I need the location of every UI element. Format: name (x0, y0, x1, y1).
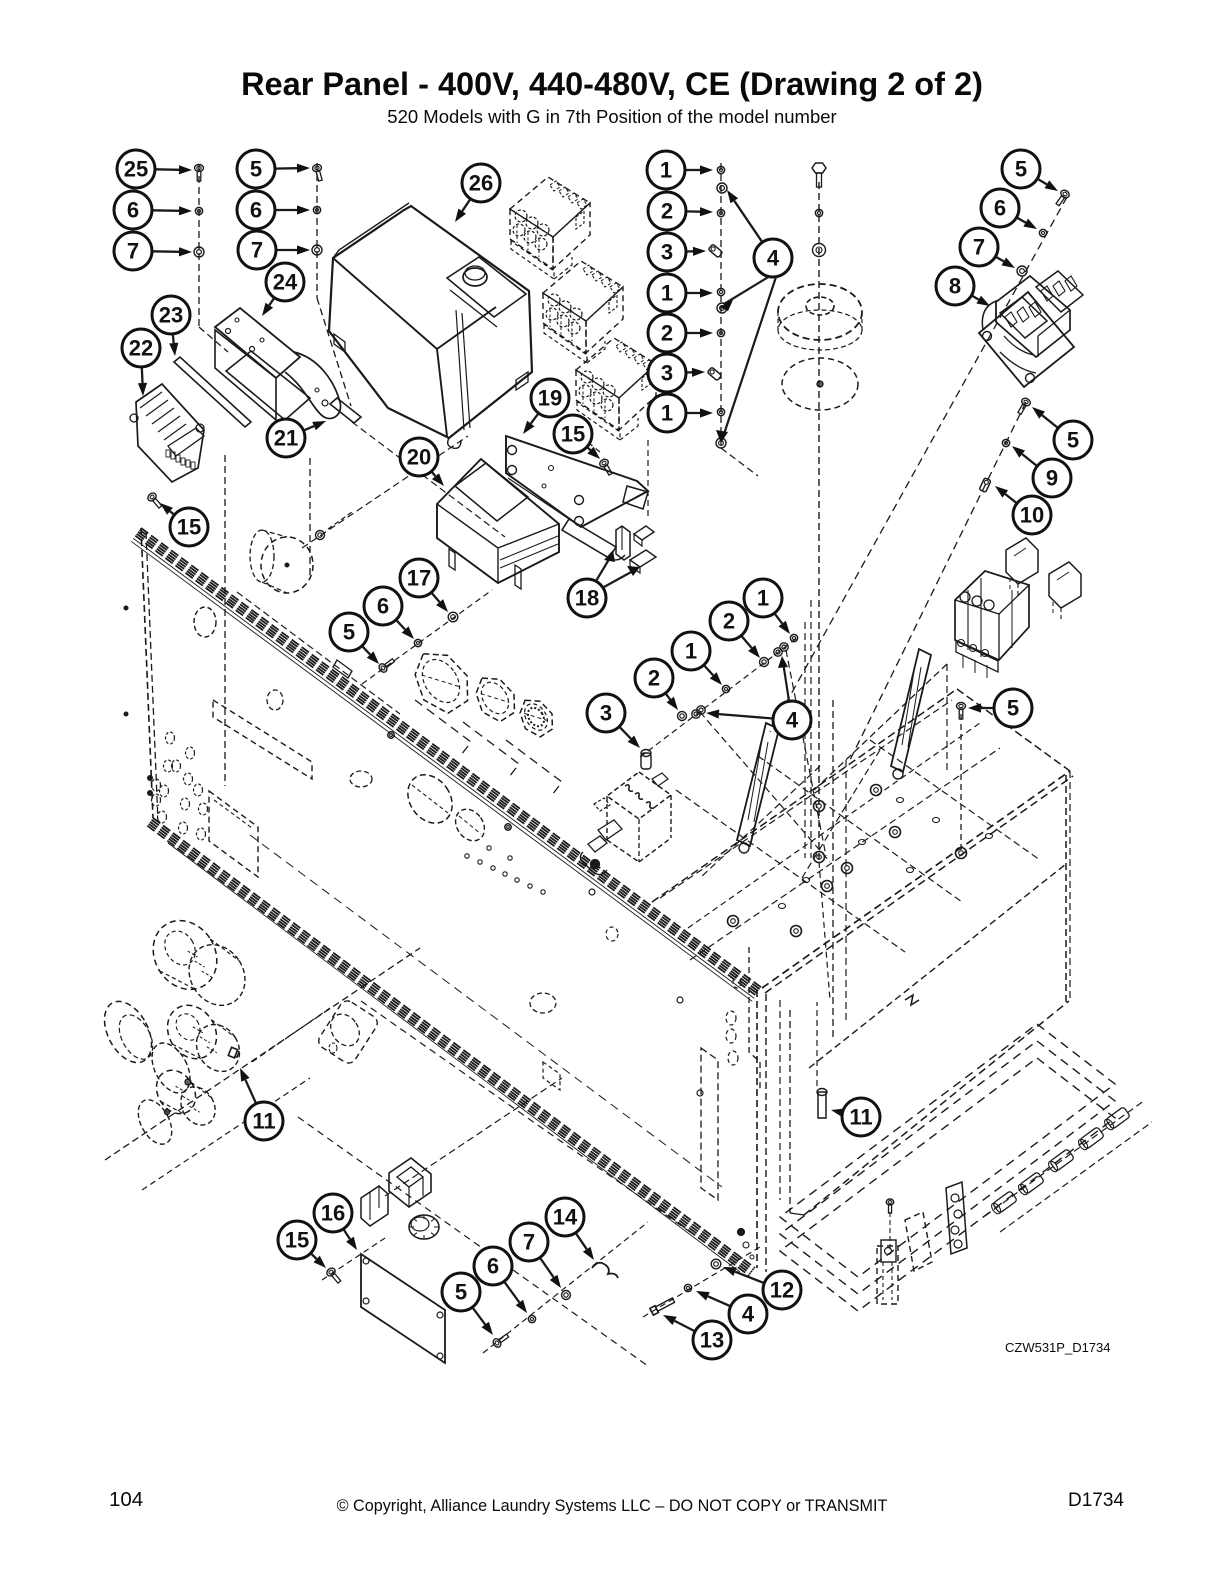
svg-text:1: 1 (757, 586, 769, 611)
svg-text:1: 1 (685, 639, 697, 664)
svg-text:2: 2 (661, 321, 673, 346)
svg-text:4: 4 (786, 708, 799, 733)
svg-text:3: 3 (661, 361, 673, 386)
svg-text:6: 6 (377, 594, 389, 619)
svg-text:11: 11 (849, 1105, 872, 1130)
svg-text:26: 26 (469, 171, 493, 196)
svg-text:4: 4 (767, 246, 780, 271)
svg-text:5: 5 (455, 1280, 467, 1305)
svg-text:16: 16 (321, 1201, 345, 1226)
svg-text:17: 17 (407, 566, 431, 591)
svg-text:104: 104 (109, 1488, 143, 1511)
svg-text:15: 15 (561, 422, 585, 447)
svg-text:6: 6 (250, 198, 262, 223)
svg-text:14: 14 (553, 1205, 578, 1230)
svg-text:25: 25 (124, 157, 148, 182)
svg-text:7: 7 (523, 1230, 535, 1255)
svg-text:5: 5 (1015, 157, 1027, 182)
svg-text:7: 7 (973, 235, 985, 260)
svg-text:7: 7 (251, 238, 263, 263)
svg-text:5: 5 (1067, 428, 1079, 453)
svg-text:9: 9 (1046, 466, 1058, 491)
svg-text:22: 22 (129, 336, 153, 361)
svg-text:5: 5 (343, 620, 355, 645)
svg-text:520 Models with G in 7th Posit: 520 Models with G in 7th Position of the… (387, 106, 836, 127)
svg-text:2: 2 (723, 609, 735, 634)
svg-text:12: 12 (770, 1278, 794, 1303)
svg-text:7: 7 (127, 239, 139, 264)
svg-text:1: 1 (660, 158, 672, 183)
svg-text:4: 4 (742, 1302, 755, 1327)
svg-text:© Copyright, Alliance Laundry: © Copyright, Alliance Laundry Systems LL… (337, 1497, 888, 1515)
svg-text:24: 24 (273, 270, 298, 295)
svg-text:15: 15 (177, 515, 201, 540)
svg-text:15: 15 (285, 1228, 309, 1253)
svg-text:1: 1 (661, 281, 673, 306)
svg-text:21: 21 (274, 426, 298, 451)
svg-text:6: 6 (487, 1254, 499, 1279)
svg-text:5: 5 (1007, 696, 1019, 721)
svg-text:D1734: D1734 (1068, 1490, 1124, 1511)
svg-text:2: 2 (661, 199, 673, 224)
svg-text:13: 13 (700, 1328, 724, 1353)
svg-text:8: 8 (949, 274, 961, 299)
svg-text:20: 20 (407, 445, 431, 470)
svg-text:10: 10 (1020, 503, 1044, 528)
svg-text:23: 23 (159, 303, 183, 328)
svg-text:1: 1 (661, 401, 673, 426)
svg-text:CZW531P_D1734: CZW531P_D1734 (1005, 1340, 1111, 1355)
svg-text:19: 19 (538, 386, 562, 411)
svg-text:3: 3 (600, 701, 612, 726)
svg-text:6: 6 (127, 198, 139, 223)
svg-text:3: 3 (661, 240, 673, 265)
svg-text:2: 2 (648, 666, 660, 691)
svg-text:6: 6 (994, 196, 1006, 221)
svg-text:Rear Panel - 400V, 440-480V, C: Rear Panel - 400V, 440-480V, CE (Drawing… (241, 66, 983, 102)
svg-text:11: 11 (252, 1109, 275, 1134)
svg-text:5: 5 (250, 157, 262, 182)
svg-text:18: 18 (575, 586, 599, 611)
